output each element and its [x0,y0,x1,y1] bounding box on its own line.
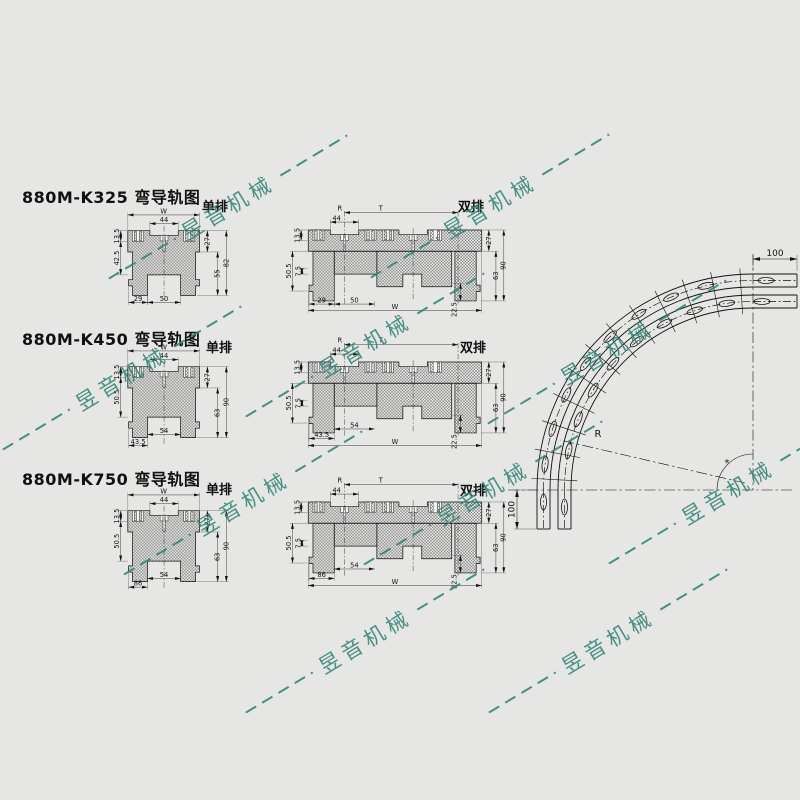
dim-label: 44 [332,215,341,223]
dim-label: 54 [350,422,359,430]
dim-label: 44 [160,352,169,360]
dim-label: 44 [332,487,341,495]
cross-section-single-k750: W4413.550.52763905486 [101,482,235,593]
dim-label: 50.5 [285,264,293,279]
dim-label: 27 [203,373,211,382]
watermark-dash [245,671,313,713]
dim-label: 50.5 [113,534,121,549]
dim-label: T [378,476,384,484]
dim-label: 50 [350,297,359,305]
dim-label: 86 [317,571,326,579]
dim-label: 27 [485,368,493,377]
cross-section-single-k325: W4413.542.52755822950 [101,202,235,313]
dim-label: 50.5 [285,536,293,551]
dim-label: 63 [492,271,500,280]
dim-label: 44 [332,347,341,355]
dim-label: 13.5 [294,500,302,515]
dim-label: 22.5 [450,302,458,317]
dim-label: T [378,336,384,344]
dim-label: 44 [160,496,169,504]
dim-label: 86 [134,580,143,588]
dim-label: 63 [214,553,222,562]
dim-label: 90 [222,542,230,551]
dim-label: 54 [350,562,359,570]
cross-section-double-k325: 44RT13.57.550.527639022.52950W [281,200,520,323]
dim-label: 50 [160,295,169,303]
watermark-dash [2,408,70,450]
dim-label: R [595,429,602,440]
dim-label: 63 [492,543,500,552]
dim-label: 100 [508,501,518,518]
dim-label: 27 [485,508,493,517]
dim-label: 13.5 [113,229,121,244]
dim-label: 29 [317,297,326,305]
curved-rail-plan-view: *R100100 [500,240,800,540]
dim-label: 7.5 [294,398,302,409]
dim-label: 7.5 [294,538,302,549]
cross-section-single-k450: W4413.550.52763905443.5 [101,338,235,449]
drawing-canvas: 880M-K325 弯导轨图 880M-K450 弯导轨图 880M-K750 … [0,0,800,800]
dim-label: R [337,336,342,344]
dim-label: 22.5 [450,574,458,589]
dim-label: 55 [214,269,222,278]
dim-label: 63 [492,403,500,412]
dim-label: W [392,303,399,311]
dim-label: 54 [160,427,169,435]
dim-label: W [160,207,167,215]
dim-label: 27 [485,236,493,245]
cross-section-double-k450: 44RT13.57.550.527639022.55443.5W [281,332,520,455]
watermark-dash [542,133,610,175]
dim-label: 54 [160,571,169,579]
watermark-text: 昱音机械 [313,601,418,680]
watermark-text: 昱音机械 [556,601,661,680]
dim-label: 13.5 [294,360,302,375]
dim-label: 63 [214,409,222,418]
watermark-dash [660,568,728,610]
cross-section-double-k750: 44RT13.57.550.527639022.55486W [281,472,520,595]
dim-label: 44 [160,216,169,224]
dim-label: T [378,204,384,212]
dim-label: 82 [222,259,230,268]
dim-label: 7.5 [294,266,302,277]
dim-label: W [392,438,399,446]
dim-label: 22.5 [450,434,458,449]
dim-label: 90 [222,398,230,407]
dim-label: * [725,458,730,469]
dim-label: W [392,578,399,586]
watermark-dash [488,671,556,713]
dim-label: 29 [134,295,143,303]
dim-label: W [160,487,167,495]
dim-label: 100 [766,249,783,259]
watermark-dash [280,134,348,176]
dim-label: 13.5 [113,509,121,524]
dim-label: R [337,204,342,212]
dim-label: 50.5 [285,396,293,411]
dim-label: 27 [203,237,211,246]
dim-label: 43.5 [314,431,329,439]
dim-label: 43.5 [131,438,146,446]
dim-label: W [160,343,167,351]
dim-label: 50.5 [113,390,121,405]
dim-label: R [337,476,342,484]
dim-label: 27 [203,517,211,526]
dim-label: 13.5 [294,228,302,243]
dim-label: 42.5 [113,251,121,266]
dim-label: 13.5 [113,365,121,380]
